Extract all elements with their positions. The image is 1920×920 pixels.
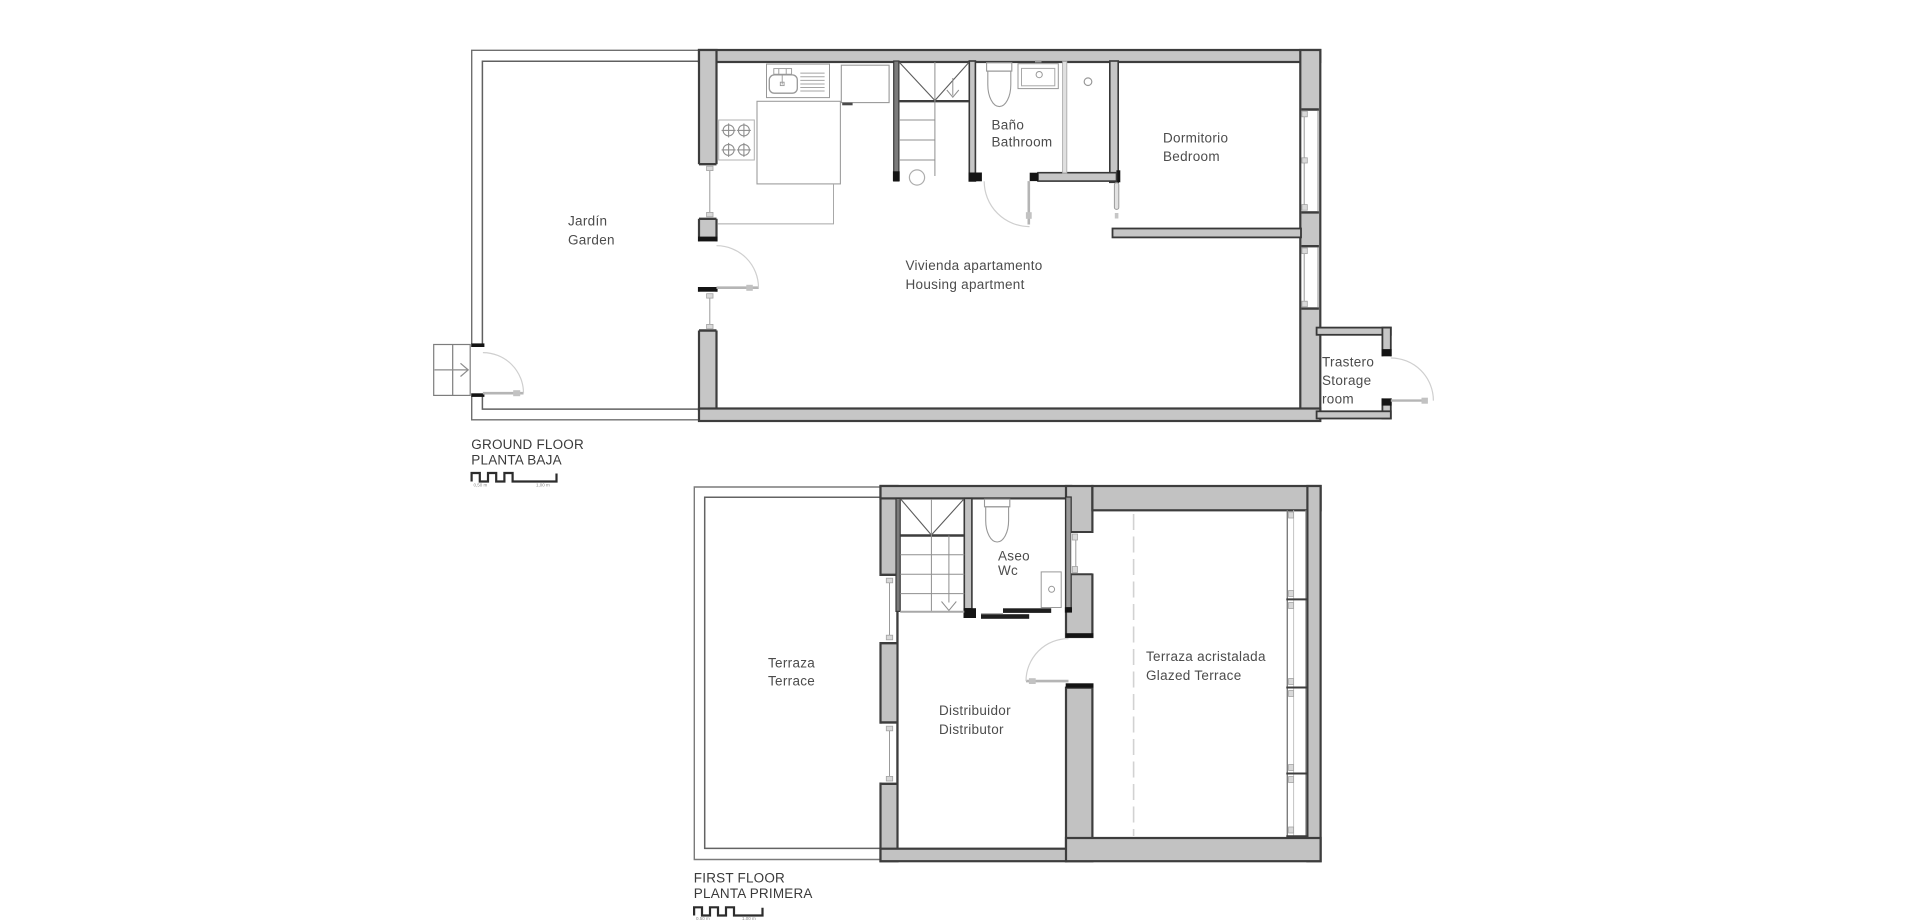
svg-text:Bathroom: Bathroom xyxy=(992,135,1053,150)
svg-text:Terrace: Terrace xyxy=(768,674,815,689)
svg-text:Trastero: Trastero xyxy=(1322,355,1374,370)
svg-text:Storage: Storage xyxy=(1322,373,1371,388)
svg-text:0,50 m: 0,50 m xyxy=(696,916,710,920)
svg-text:Housing apartment: Housing apartment xyxy=(906,277,1025,292)
svg-text:1,00 m: 1,00 m xyxy=(742,916,756,920)
svg-text:Vivienda apartamento: Vivienda apartamento xyxy=(906,258,1043,273)
svg-text:PLANTA PRIMERA: PLANTA PRIMERA xyxy=(694,886,813,901)
svg-text:Wc: Wc xyxy=(998,563,1018,578)
svg-text:Aseo: Aseo xyxy=(998,549,1030,564)
svg-text:PLANTA BAJA: PLANTA BAJA xyxy=(471,453,561,468)
svg-text:0,50 m: 0,50 m xyxy=(474,483,488,488)
svg-text:Distribuidor: Distribuidor xyxy=(939,703,1011,718)
svg-text:GROUND FLOOR: GROUND FLOOR xyxy=(471,437,584,452)
svg-text:FIRST FLOOR: FIRST FLOOR xyxy=(694,871,785,886)
svg-text:1,00 m: 1,00 m xyxy=(536,483,550,488)
svg-text:room: room xyxy=(1322,392,1354,407)
svg-text:Dormitorio: Dormitorio xyxy=(1163,131,1228,146)
svg-text:Terraza acristalada: Terraza acristalada xyxy=(1146,649,1266,664)
svg-text:Garden: Garden xyxy=(568,233,615,248)
svg-text:Bedroom: Bedroom xyxy=(1163,149,1220,164)
svg-text:Jardín: Jardín xyxy=(568,214,607,229)
svg-text:Terraza: Terraza xyxy=(768,656,815,671)
svg-text:Distributor: Distributor xyxy=(939,722,1004,737)
svg-text:Baño: Baño xyxy=(992,118,1025,133)
svg-text:Glazed Terrace: Glazed Terrace xyxy=(1146,668,1242,683)
